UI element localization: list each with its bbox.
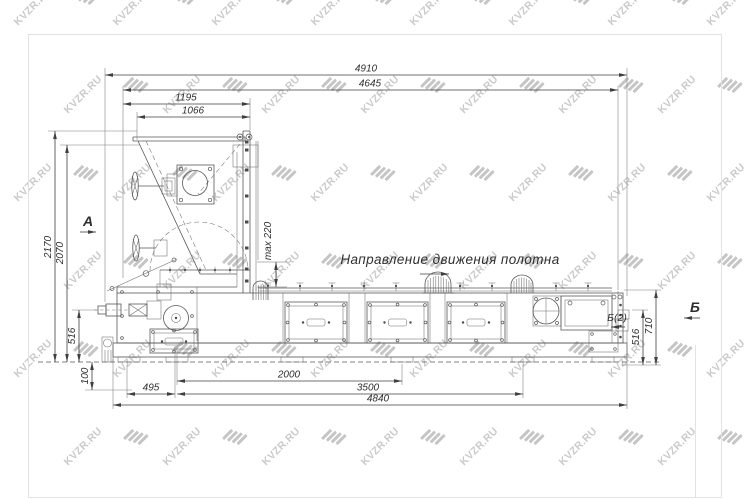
- watermark-logo: [222, 72, 248, 98]
- watermark-text: KVZR.RU: [408, 161, 451, 204]
- watermark-logo: [73, 160, 99, 186]
- watermark-text: KVZR.RU: [705, 161, 748, 204]
- watermark-logo: [469, 160, 495, 186]
- watermark-text: KVZR.RU: [458, 425, 501, 468]
- watermark-logo: [123, 72, 149, 98]
- watermark-text: KVZR.RU: [210, 0, 253, 28]
- watermark-logo: [271, 0, 297, 10]
- watermark-logo: [618, 424, 644, 450]
- watermark-text: KVZR.RU: [111, 337, 154, 380]
- watermark-text: KVZR.RU: [606, 0, 649, 28]
- watermark-logo: [469, 336, 495, 362]
- watermark-logo: [469, 0, 495, 10]
- watermark-text: KVZR.RU: [62, 425, 105, 468]
- watermark-logo: [667, 336, 693, 362]
- watermark-logo: [717, 248, 743, 274]
- dim-drive-offset: 495: [143, 383, 160, 394]
- watermark-text: KVZR.RU: [62, 249, 105, 292]
- watermark-text: KVZR.RU: [12, 337, 55, 380]
- watermark-logo: [321, 72, 347, 98]
- watermark-text: KVZR.RU: [408, 0, 451, 28]
- dim-hopper-opening: 1066: [182, 106, 205, 117]
- watermark-text: KVZR.RU: [656, 249, 699, 292]
- dim-hopper-height: 2070: [55, 241, 66, 265]
- swing-arc: [150, 222, 248, 271]
- dim-shaft-height: 516: [67, 327, 78, 344]
- hopper-assembly: [132, 131, 287, 293]
- watermark-logo: [568, 336, 594, 362]
- watermark-text: KVZR.RU: [62, 73, 105, 116]
- watermark-logo: [519, 72, 545, 98]
- watermark-text: KVZR.RU: [210, 337, 253, 380]
- dim-overall-height: 2170: [43, 235, 54, 259]
- watermark-text: KVZR.RU: [705, 337, 748, 380]
- watermark-text: KVZR.RU: [161, 425, 204, 468]
- watermark-logo: [370, 0, 396, 10]
- technical-drawing-canvas: KVZR.RUKVZR.RUKVZR.RUKVZR.RUKVZR.RUKVZR.…: [0, 0, 750, 500]
- watermark-logo: [667, 0, 693, 10]
- watermark-logo: [271, 160, 297, 186]
- dim-overall-length: 4910: [355, 64, 378, 75]
- access-panel-2: [367, 302, 428, 343]
- dim-hopper-span: 1195: [175, 93, 197, 104]
- watermark-logo: [519, 424, 545, 450]
- watermark-text: KVZR.RU: [260, 73, 303, 116]
- watermark-text: KVZR.RU: [557, 249, 600, 292]
- watermark-logo: [717, 424, 743, 450]
- watermark-text: KVZR.RU: [260, 425, 303, 468]
- drawing-sheet: KVZR.RUKVZR.RUKVZR.RUKVZR.RUKVZR.RUKVZR.…: [0, 0, 750, 500]
- watermark-text: KVZR.RU: [111, 0, 154, 28]
- watermark-text: KVZR.RU: [458, 73, 501, 116]
- watermark-text: KVZR.RU: [408, 337, 451, 380]
- watermark-logo: [568, 160, 594, 186]
- belt-direction-label: Направление движения полотна: [340, 252, 559, 267]
- dim-end-height: 710: [644, 317, 655, 334]
- access-panel-1: [285, 302, 347, 343]
- dim-body-length: 4645: [359, 79, 382, 90]
- watermark-logo: [568, 0, 594, 10]
- watermark-text: KVZR.RU: [359, 425, 402, 468]
- watermark-text: KVZR.RU: [12, 0, 55, 28]
- access-panel-3: [447, 302, 505, 343]
- watermark-logo: [172, 0, 198, 10]
- dim-support-pitch: 2000: [277, 370, 301, 381]
- section-marker-b2: Б(2): [607, 312, 627, 324]
- watermark-text: KVZR.RU: [12, 161, 55, 204]
- watermark-text: KVZR.RU: [309, 0, 352, 28]
- dim-base-length: 4840: [367, 394, 390, 405]
- arched-cover-mid: [422, 272, 454, 293]
- dim-outlet-height: 516: [631, 328, 642, 345]
- watermark-logo: [420, 72, 446, 98]
- watermark-logo: [123, 424, 149, 450]
- watermark-logo: [717, 72, 743, 98]
- watermark-logo: [420, 424, 446, 450]
- watermark-text: KVZR.RU: [656, 425, 699, 468]
- section-marker-a: А: [82, 213, 93, 229]
- dim-foot-height: 100: [80, 367, 91, 384]
- fan-unit: [533, 296, 612, 330]
- watermark-text: KVZR.RU: [557, 73, 600, 116]
- dim-support-span: 3500: [357, 383, 380, 394]
- dim-max-gap: max 220: [263, 221, 274, 260]
- watermark-text: KVZR.RU: [507, 0, 550, 28]
- watermark-logo: [73, 0, 99, 10]
- watermark-logo: [222, 424, 248, 450]
- access-panels: [285, 302, 505, 343]
- section-marker-b: Б: [690, 299, 700, 315]
- watermark-text: KVZR.RU: [309, 161, 352, 204]
- watermark-text: KVZR.RU: [309, 337, 352, 380]
- watermark-text: KVZR.RU: [705, 0, 748, 28]
- watermark-text: KVZR.RU: [507, 337, 550, 380]
- watermark-logo: [618, 72, 644, 98]
- watermark-logo: [172, 160, 198, 186]
- watermark-text: KVZR.RU: [557, 425, 600, 468]
- arched-cover-right: [511, 275, 533, 293]
- watermark-logo: [271, 336, 297, 362]
- watermark-text: KVZR.RU: [507, 161, 550, 204]
- watermark-logo: [667, 160, 693, 186]
- watermark-text: KVZR.RU: [210, 161, 253, 204]
- watermark-logo: [618, 248, 644, 274]
- watermark-logo: [370, 160, 396, 186]
- watermark-logo: [370, 336, 396, 362]
- machine-drawing: [38, 131, 660, 362]
- watermark-logo: [321, 424, 347, 450]
- watermark-text: KVZR.RU: [656, 73, 699, 116]
